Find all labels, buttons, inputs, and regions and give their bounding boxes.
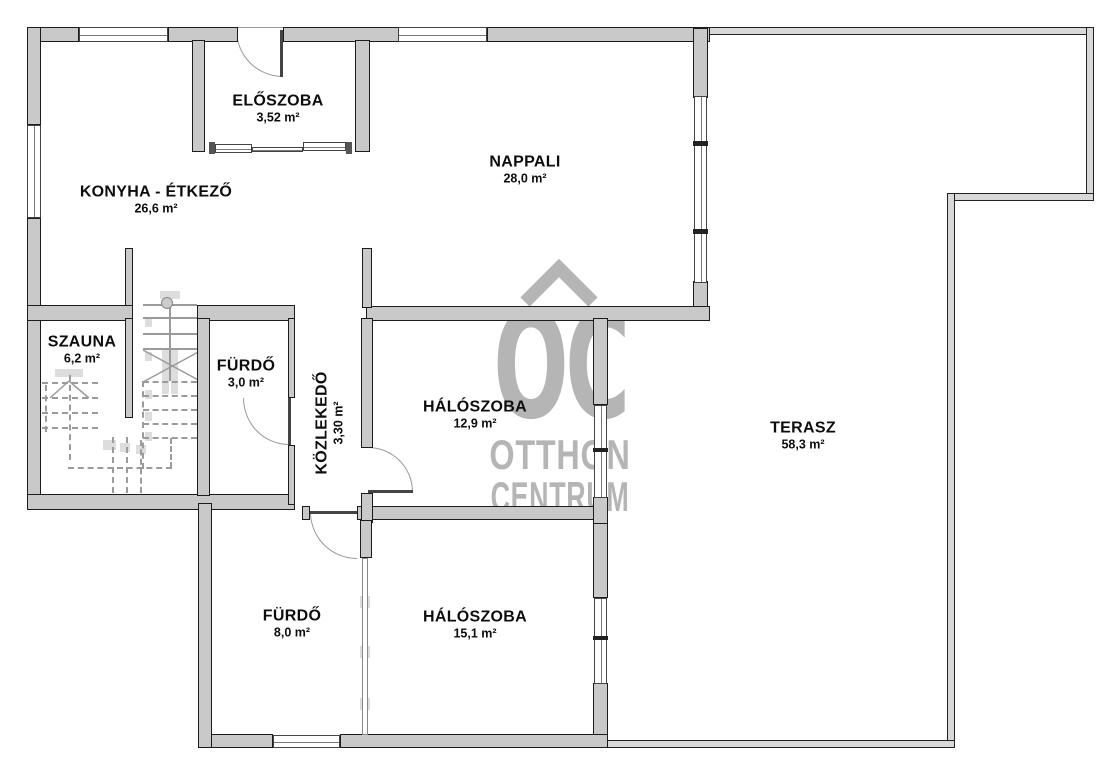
wall-segment (357, 506, 608, 520)
room-area: 3,0 m² (217, 376, 275, 390)
stair-mark (145, 412, 152, 421)
stair-stringer (171, 350, 178, 394)
stair-landing (120, 443, 130, 452)
stair-tread-dashed (143, 409, 197, 411)
stair-dashed-edge (142, 381, 144, 469)
wall-segment (361, 318, 373, 448)
room-name: TERASZ (770, 420, 836, 438)
wall-segment (197, 305, 295, 321)
stair-tread-dashed (143, 423, 197, 425)
door-arc (310, 512, 357, 559)
window (398, 27, 487, 42)
room-area: 3,30 m² (332, 371, 346, 474)
room-label-haloszoba-1: HÁLÓSZOBA 12,9 m² (423, 399, 527, 432)
floor-plan: OC OTTHON CENTRUM (0, 0, 1120, 774)
wall-segment (288, 318, 295, 398)
terrace-wall (947, 193, 955, 748)
stair-tread-dashed (112, 437, 114, 493)
terrace-wall (947, 193, 1094, 201)
stair-tread-dashed (126, 437, 128, 493)
wall-segment (355, 40, 370, 152)
stair-tread-dashed (143, 381, 197, 383)
window (273, 735, 340, 748)
door-arc (368, 447, 413, 492)
wall-segment (198, 503, 212, 748)
terrace-wall (1086, 27, 1094, 201)
wall-segment (302, 506, 310, 520)
door-leaf (368, 490, 413, 493)
wall-segment (125, 248, 133, 308)
room-area: 12,9 m² (423, 417, 527, 431)
window (694, 96, 707, 283)
room-label-terasz: TERASZ 58,3 m² (770, 420, 836, 453)
wall-segment (366, 306, 710, 321)
screen-cap (209, 142, 215, 154)
wall-segment (283, 27, 399, 42)
glazed-screen (303, 142, 346, 151)
room-name: NAPPALI (489, 154, 560, 172)
wall-segment (487, 27, 710, 42)
wall-segment (593, 523, 608, 598)
room-area: 6,2 m² (48, 352, 116, 366)
wall-segment (693, 28, 708, 98)
room-name: HÁLÓSZOBA (423, 399, 527, 417)
door-leaf (288, 398, 291, 445)
wall-segment (362, 248, 372, 308)
window (79, 27, 168, 42)
wall-segment (340, 734, 608, 748)
room-name: FÜRDŐ (217, 358, 275, 376)
stair-center-line (169, 305, 171, 381)
stair-dashed-edge (170, 438, 172, 468)
room-label-konyha: KONYHA - ÉTKEZŐ 26,6 m² (80, 184, 232, 217)
room-name: ELŐSZOBA (232, 93, 323, 111)
wall-segment (593, 497, 608, 525)
watermark-line1: OTTHON (489, 434, 630, 476)
room-name: SZAUNA (48, 334, 116, 352)
stair-dashed-edge (45, 385, 47, 432)
room-label-szauna: SZAUNA 6,2 m² (48, 334, 116, 367)
stair-dashed-edge (68, 467, 172, 469)
stair-tread-dashed (140, 440, 142, 493)
door-arc (236, 30, 283, 77)
stair-dashed-edge (69, 375, 71, 460)
room-area: 15,1 m² (423, 627, 527, 641)
room-label-eloszoba: ELŐSZOBA 3,52 m² (232, 93, 323, 126)
terrace-wall (600, 740, 955, 748)
room-name: FÜRDŐ (263, 608, 321, 626)
door-leaf (310, 511, 357, 514)
room-area: 58,3 m² (770, 438, 836, 452)
wall-segment (360, 520, 372, 558)
room-label-kozlekedo: KÖZLEKEDŐ 3,30 m² (314, 371, 347, 474)
partition-wall (362, 558, 368, 735)
wall-segment (27, 305, 133, 321)
room-name: HÁLÓSZOBA (423, 609, 527, 627)
wall-segment (197, 318, 210, 496)
room-name: KONYHA - ÉTKEZŐ (80, 184, 232, 202)
wall-segment (192, 40, 205, 152)
screen-cap (346, 142, 352, 154)
window (27, 125, 41, 218)
room-area: 8,0 m² (263, 626, 321, 640)
stair-landing (103, 440, 116, 450)
room-name: KÖZLEKEDŐ (314, 371, 332, 474)
wall-segment (288, 445, 295, 505)
window (594, 598, 607, 684)
stair-tread-dashed (143, 395, 197, 397)
stair-post (161, 297, 173, 309)
room-label-haloszoba-2: HÁLÓSZOBA 15,1 m² (423, 609, 527, 642)
window-divider (693, 141, 708, 146)
stair-mark (145, 352, 152, 361)
window-divider (593, 448, 608, 452)
room-label-furdo-nagy: FÜRDŐ 8,0 m² (263, 608, 321, 641)
wall-segment (27, 27, 41, 125)
door-arc (243, 398, 289, 445)
glazed-screen (252, 147, 303, 152)
glazed-screen (215, 144, 252, 153)
stair-stringer (162, 350, 169, 394)
door-leaf (280, 30, 283, 77)
room-area: 3,52 m² (232, 111, 323, 125)
wall-segment (125, 318, 133, 418)
room-label-furdo-kicsi: FÜRDŐ 3,0 m² (217, 358, 275, 391)
wall-segment (361, 493, 373, 523)
stair-mark (145, 318, 152, 327)
terrace-wall (708, 27, 1094, 35)
wall-segment (593, 318, 608, 405)
room-area: 26,6 m² (80, 202, 232, 216)
wall-segment (27, 218, 41, 510)
door-threshold (238, 27, 283, 28)
window-divider (593, 636, 608, 640)
wall-segment (27, 494, 295, 510)
window-divider (693, 229, 708, 234)
room-label-nappali: NAPPALI 28,0 m² (489, 154, 560, 187)
room-area: 28,0 m² (489, 172, 560, 186)
